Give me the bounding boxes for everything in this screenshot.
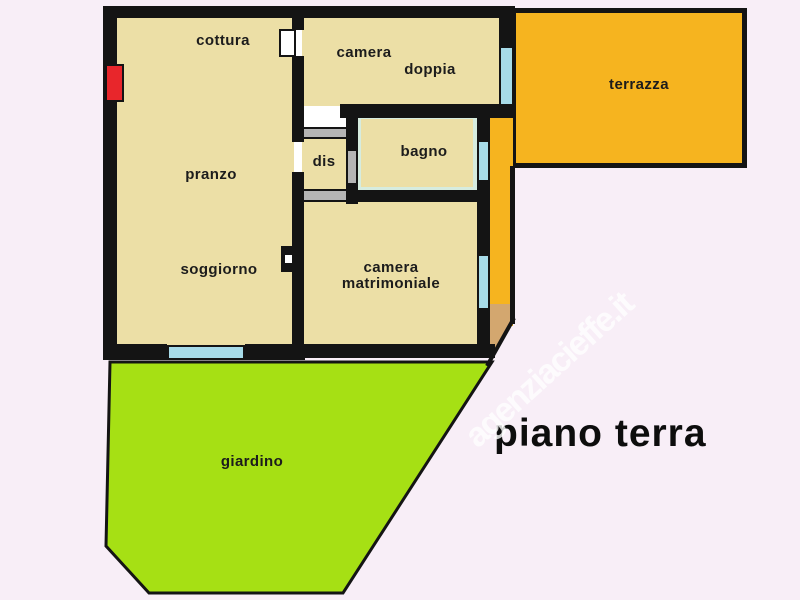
- wall-bottom-camera-matrimoniale: [302, 344, 495, 358]
- wall-right-a: [477, 116, 490, 140]
- label-bagno: bagno: [401, 144, 448, 160]
- wall-camera-doppia-right-top: [499, 6, 515, 48]
- wall-left: [103, 6, 117, 360]
- door-dis-camera-matrimoniale: [302, 189, 348, 202]
- label-camera-doppia-2: doppia: [404, 62, 456, 78]
- label-terrazza: terrazza: [609, 77, 669, 93]
- door-cottura-camera: [279, 29, 296, 57]
- divider-wall-a: [292, 16, 304, 30]
- label-dis: dis: [313, 154, 336, 170]
- window-camera-matrimoniale: [477, 254, 490, 310]
- window-bagno: [477, 140, 490, 182]
- strip-right-wall: [510, 166, 515, 324]
- label-camera-matrimoniale: camera matrimoniale: [342, 260, 440, 292]
- entry-door-red: [105, 64, 124, 102]
- door-dis-camera-doppia: [302, 127, 348, 139]
- label-camera-matrimoniale-line2: matrimoniale: [342, 275, 440, 292]
- label-cottura: cottura: [196, 33, 250, 49]
- terrazza-side-strip: [486, 104, 513, 326]
- pillar-dot: [285, 255, 292, 263]
- divider-pillar: [281, 246, 295, 272]
- wall-right-c: [477, 310, 490, 350]
- landing-corner: [486, 304, 513, 348]
- window-camera-doppia: [499, 46, 514, 106]
- wall-bottom-soggiorno-left: [103, 344, 167, 360]
- door-dis-bagno: [346, 149, 358, 185]
- wall-bagno-bottom: [346, 190, 490, 202]
- label-pranzo: pranzo: [185, 167, 237, 183]
- wall-right-b: [477, 182, 490, 254]
- window-soggiorno-giardino: [167, 345, 245, 360]
- label-soggiorno: soggiorno: [181, 262, 258, 278]
- wall-bagno-left-top: [346, 104, 358, 149]
- floor-plan: cottura camera doppia pranzo dis bagno s…: [0, 0, 800, 600]
- label-camera-matrimoniale-line1: camera: [364, 259, 419, 276]
- wall-top: [103, 6, 515, 18]
- label-giardino: giardino: [221, 454, 283, 470]
- room-camera-doppia: [302, 16, 500, 106]
- label-camera-doppia-1: camera: [337, 45, 392, 61]
